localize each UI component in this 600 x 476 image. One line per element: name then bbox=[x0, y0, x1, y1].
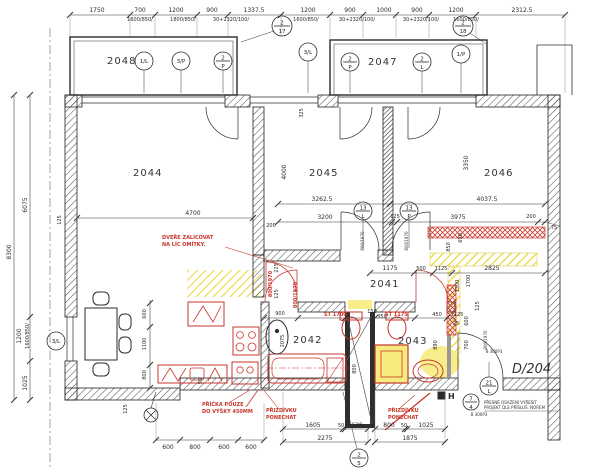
position-mark: 2L bbox=[413, 53, 431, 71]
room-label: 2043 bbox=[398, 336, 427, 347]
h-marker-label: H bbox=[448, 392, 455, 401]
mark-label: 21 bbox=[486, 381, 493, 387]
dim-label: 1025 bbox=[22, 375, 29, 390]
burner bbox=[236, 343, 244, 351]
wall bbox=[318, 95, 338, 107]
dim-label: 1000 bbox=[376, 7, 391, 14]
wall-2044-2045 bbox=[253, 107, 264, 255]
floor-plan-canvas: 1/L 3/P 2P 217 3/L 2P 2L 1/P 218 13L 13P… bbox=[0, 0, 600, 476]
balcony-2047-outline bbox=[330, 40, 487, 95]
window-spec-label: 30+2320/100/ bbox=[403, 17, 440, 23]
new-wall bbox=[428, 227, 545, 238]
dim-label: 800 bbox=[142, 370, 148, 380]
door-size-label: B 300P3 bbox=[471, 412, 488, 417]
dim-label: 225 bbox=[274, 263, 280, 273]
mark-label: 3/L bbox=[304, 50, 313, 56]
dim-label: 850 bbox=[446, 242, 452, 252]
mark-label: 13 bbox=[360, 206, 367, 212]
red-annotations: DVEŘE ZALICOVAT NA LÍC OMÍTKY. PŘÍČKA PO… bbox=[162, 234, 419, 421]
dim-label: 200 bbox=[266, 223, 276, 229]
note-partition-height: DO VÝŠKY 450MM bbox=[202, 408, 253, 415]
note-exact-placement: PROJEKT DLE PŘÍSLUŠ. NOREM bbox=[484, 405, 546, 410]
drain bbox=[275, 329, 278, 332]
dim-label: 325 bbox=[299, 108, 305, 118]
drawing-ref-label: D/204 bbox=[512, 362, 551, 377]
dim-label: 50 bbox=[338, 423, 344, 429]
dining-table bbox=[85, 308, 117, 360]
door-size-label: 800/1970 bbox=[360, 231, 365, 251]
wall bbox=[225, 95, 250, 107]
h-marker-box bbox=[438, 392, 445, 399]
mark-label: 5 bbox=[357, 461, 361, 467]
door-size-label: B 300P3 bbox=[486, 349, 503, 354]
dim-label: 150 bbox=[367, 309, 377, 315]
dim-label: 4000 bbox=[281, 164, 288, 179]
mark-label: P bbox=[221, 64, 225, 70]
dim-label: 600 bbox=[162, 444, 174, 451]
red-dim-label: ST 1175 bbox=[385, 312, 408, 318]
mark-label: 1/L bbox=[140, 59, 149, 65]
position-mark: 2P bbox=[214, 52, 232, 70]
dim-label: 800 bbox=[383, 422, 395, 429]
dim-label: 600 bbox=[464, 316, 470, 326]
dim-label: 25 bbox=[453, 321, 459, 327]
position-mark: 3/P bbox=[172, 52, 190, 70]
note-doors-flush: NA LÍC OMÍTKY. bbox=[162, 240, 205, 248]
dim-label: 4037.5 bbox=[477, 196, 498, 203]
top-right-step bbox=[537, 45, 572, 95]
dim-label: 900 bbox=[275, 311, 285, 317]
mark-label: 2 bbox=[420, 57, 424, 63]
dim-label: 890 bbox=[433, 340, 439, 350]
mark-label: P bbox=[348, 65, 352, 71]
mark-label: 3/L bbox=[52, 339, 61, 345]
mark-label: 13 bbox=[406, 206, 413, 212]
note-keep-lining: PONECHAT bbox=[388, 415, 419, 421]
chair bbox=[93, 363, 109, 376]
mark-label: L bbox=[361, 214, 365, 220]
door-swing bbox=[340, 107, 372, 139]
position-mark: 3/L bbox=[47, 332, 65, 350]
dim-label: 125 bbox=[475, 301, 481, 311]
sink-bowl bbox=[237, 367, 243, 373]
dim-label: 650 bbox=[458, 233, 464, 243]
dim-label: 450 bbox=[432, 312, 442, 318]
dim-label: 600 bbox=[245, 444, 257, 451]
chair bbox=[119, 314, 131, 330]
position-mark: 2P bbox=[341, 53, 359, 71]
kitchen-fixtures bbox=[158, 302, 259, 384]
dim-label: 800 bbox=[352, 364, 358, 374]
fridge-zigzag bbox=[193, 306, 221, 322]
room-label: 2042 bbox=[293, 335, 322, 346]
position-mark: 3/L bbox=[299, 43, 317, 61]
room-label: 2044 bbox=[133, 168, 162, 179]
balconies bbox=[70, 37, 572, 95]
window-spec-label: 1600/850/ bbox=[453, 17, 479, 23]
window-spec-label: 1600/850/ bbox=[25, 323, 31, 349]
mark-label: 4 bbox=[469, 405, 473, 411]
mark-label: L bbox=[487, 389, 491, 395]
mark-label: 3/P bbox=[177, 59, 186, 65]
wall bbox=[65, 388, 180, 400]
balcony-2048-inner bbox=[74, 41, 233, 95]
mark-label: 17 bbox=[279, 29, 286, 35]
mark-label: 2 bbox=[357, 453, 361, 459]
burner bbox=[237, 332, 244, 339]
wall bbox=[503, 378, 560, 390]
leader-line bbox=[400, 395, 415, 408]
door-swing bbox=[408, 107, 440, 139]
dim-label: 50 bbox=[198, 378, 204, 384]
window-spec-label: 1600/850/ bbox=[293, 17, 319, 23]
room-label: 2046 bbox=[484, 168, 513, 179]
position-mark: 217 bbox=[272, 16, 292, 36]
dim-label: 3262.5 bbox=[312, 196, 333, 203]
dim-label: 2825 bbox=[484, 265, 499, 272]
thin-partition bbox=[447, 335, 451, 378]
wall bbox=[476, 95, 560, 107]
dim-label: 1100 bbox=[142, 338, 148, 351]
leader-line bbox=[262, 388, 278, 408]
burner bbox=[248, 343, 256, 351]
dim-label: 600 bbox=[218, 444, 230, 451]
sink-bowl bbox=[247, 367, 253, 373]
dim-label: 1025 bbox=[418, 422, 433, 429]
dim-label: 1337.5 bbox=[244, 7, 265, 14]
chair bbox=[93, 292, 109, 305]
dim-label: 3200 bbox=[317, 214, 332, 221]
dim-label: 8300 bbox=[6, 244, 13, 259]
dim-label: 125 bbox=[274, 289, 280, 299]
bath-top-wall bbox=[298, 302, 345, 312]
dim-label: 2275 bbox=[317, 435, 332, 442]
mark-label: 2 bbox=[221, 56, 225, 62]
red-mark bbox=[246, 390, 258, 407]
entry-door-swing bbox=[458, 333, 503, 378]
dim-label: 700 bbox=[134, 7, 146, 14]
door-size-label: 800/1970 bbox=[404, 231, 409, 251]
door-swing-red bbox=[416, 270, 448, 302]
highlight-blob bbox=[348, 300, 372, 309]
dim-label: 620 bbox=[351, 422, 363, 429]
dim-label: 900 bbox=[344, 7, 356, 14]
dim-label: 1605 bbox=[305, 422, 320, 429]
mark-label: 2 bbox=[280, 21, 284, 27]
position-mark: 1/P bbox=[452, 45, 470, 63]
window-spec-label: 30+2320/100/ bbox=[213, 17, 250, 23]
bottom-dimensions: 600 800 600 600 1605 50 620 2275 800 50 … bbox=[162, 422, 434, 451]
left-dimensions: 8300 6075 1200 1600/850/ 1025 125 125 50 bbox=[6, 197, 204, 414]
note-partition-height: PŘÍČKA POUZE bbox=[202, 400, 244, 408]
note-doors-flush: DVEŘE ZALICOVAT bbox=[162, 234, 214, 241]
demolished-partition bbox=[187, 270, 261, 297]
dim-label: 500 bbox=[416, 266, 426, 272]
wall bbox=[65, 95, 77, 317]
dim-label: 1125 bbox=[435, 266, 448, 272]
wall-stub bbox=[253, 255, 264, 297]
wall bbox=[548, 390, 560, 440]
note-keep-lining: PŘIZDÍVKU bbox=[388, 406, 419, 414]
dim-label: 200 bbox=[526, 214, 536, 220]
dim-label: 125 bbox=[123, 404, 129, 414]
burner bbox=[249, 332, 256, 339]
hall-top-wall bbox=[378, 250, 393, 261]
red-door-size: 800/1970 bbox=[293, 281, 299, 308]
dim-label: 1125 bbox=[451, 312, 464, 318]
bath-top-wall bbox=[375, 302, 415, 312]
door-size-label: 800/1970 bbox=[483, 330, 488, 350]
room-label: 2048 bbox=[107, 56, 136, 67]
shaft-wall bbox=[370, 312, 375, 428]
red-dim-label: ST 1700 bbox=[324, 312, 347, 318]
dim-label: 900 bbox=[411, 7, 423, 14]
position-mark: 25 bbox=[350, 449, 368, 467]
leader-line bbox=[230, 390, 250, 402]
room-label: 2045 bbox=[309, 168, 338, 179]
dim-label: 2075 bbox=[280, 335, 286, 348]
note-keep-lining: PONECHAT bbox=[266, 415, 297, 421]
note-keep-lining: PŘIZDÍVKU bbox=[266, 406, 297, 414]
wall-2045-2046 bbox=[383, 107, 393, 255]
windows bbox=[67, 97, 476, 361]
dim-label: 600 bbox=[142, 309, 148, 319]
shaft-diagonal bbox=[347, 315, 372, 360]
dim-label: 3350 bbox=[463, 155, 470, 170]
room-label: 2041 bbox=[370, 279, 399, 290]
wall bbox=[548, 95, 560, 390]
hall-top-wall bbox=[264, 250, 340, 261]
window-spec-label: 1600/850/ bbox=[127, 17, 153, 23]
mark-label: 2 bbox=[348, 57, 352, 63]
dim-label: 900 bbox=[206, 7, 218, 14]
highlight-blob bbox=[420, 346, 460, 378]
dim-label: 1200 bbox=[168, 7, 183, 14]
chair bbox=[119, 337, 131, 353]
window-spec-label: 1800/850/ bbox=[170, 17, 196, 23]
red-door-size: 800/1970 bbox=[268, 270, 274, 297]
dim-label: 4700 bbox=[185, 210, 200, 217]
room-label: 2047 bbox=[368, 57, 397, 68]
dim-label: 1200 bbox=[300, 7, 315, 14]
mark-label: L bbox=[420, 65, 424, 71]
floor-plan-screenshot: 1/L 3/P 2P 217 3/L 2P 2L 1/P 218 13L 13P… bbox=[0, 0, 600, 476]
bathtub-inner bbox=[272, 358, 324, 379]
dim-label: 1175 bbox=[382, 265, 397, 272]
dim-label: 700 bbox=[464, 340, 470, 350]
position-mark: 21L bbox=[480, 377, 498, 395]
dim-label: 1200 bbox=[16, 328, 23, 343]
cooktop bbox=[233, 327, 259, 355]
dim-label: 1750 bbox=[89, 7, 104, 14]
position-mark: 13L bbox=[354, 202, 372, 220]
position-mark: 13P bbox=[400, 202, 418, 220]
dim-label: 6075 bbox=[22, 197, 29, 212]
dim-label: 1300 bbox=[455, 280, 461, 293]
mark-label: 18 bbox=[460, 29, 467, 35]
dim-label: 3975 bbox=[450, 214, 465, 221]
dim-label: 125 bbox=[390, 214, 400, 220]
dim-label: 75 bbox=[551, 225, 557, 231]
position-mark: 1/L bbox=[135, 52, 153, 70]
dim-label: 50 bbox=[401, 423, 407, 429]
dim-label: 1700 bbox=[466, 275, 472, 288]
door-swing bbox=[206, 107, 238, 139]
fridge bbox=[188, 302, 224, 326]
dim-label: 1875 bbox=[402, 435, 417, 442]
balcony-2048-outline bbox=[70, 37, 237, 95]
dim-label: 800 bbox=[189, 444, 201, 451]
dim-label: 125 bbox=[57, 215, 63, 225]
window-spec-label: 30+2320/100/ bbox=[339, 17, 376, 23]
position-mark: 74 bbox=[463, 394, 479, 411]
dim-label: 1200 bbox=[448, 7, 463, 14]
mark-label: 1/P bbox=[457, 52, 466, 58]
mark-label: 7 bbox=[469, 397, 473, 403]
dim-label: 2312.5 bbox=[512, 7, 533, 14]
